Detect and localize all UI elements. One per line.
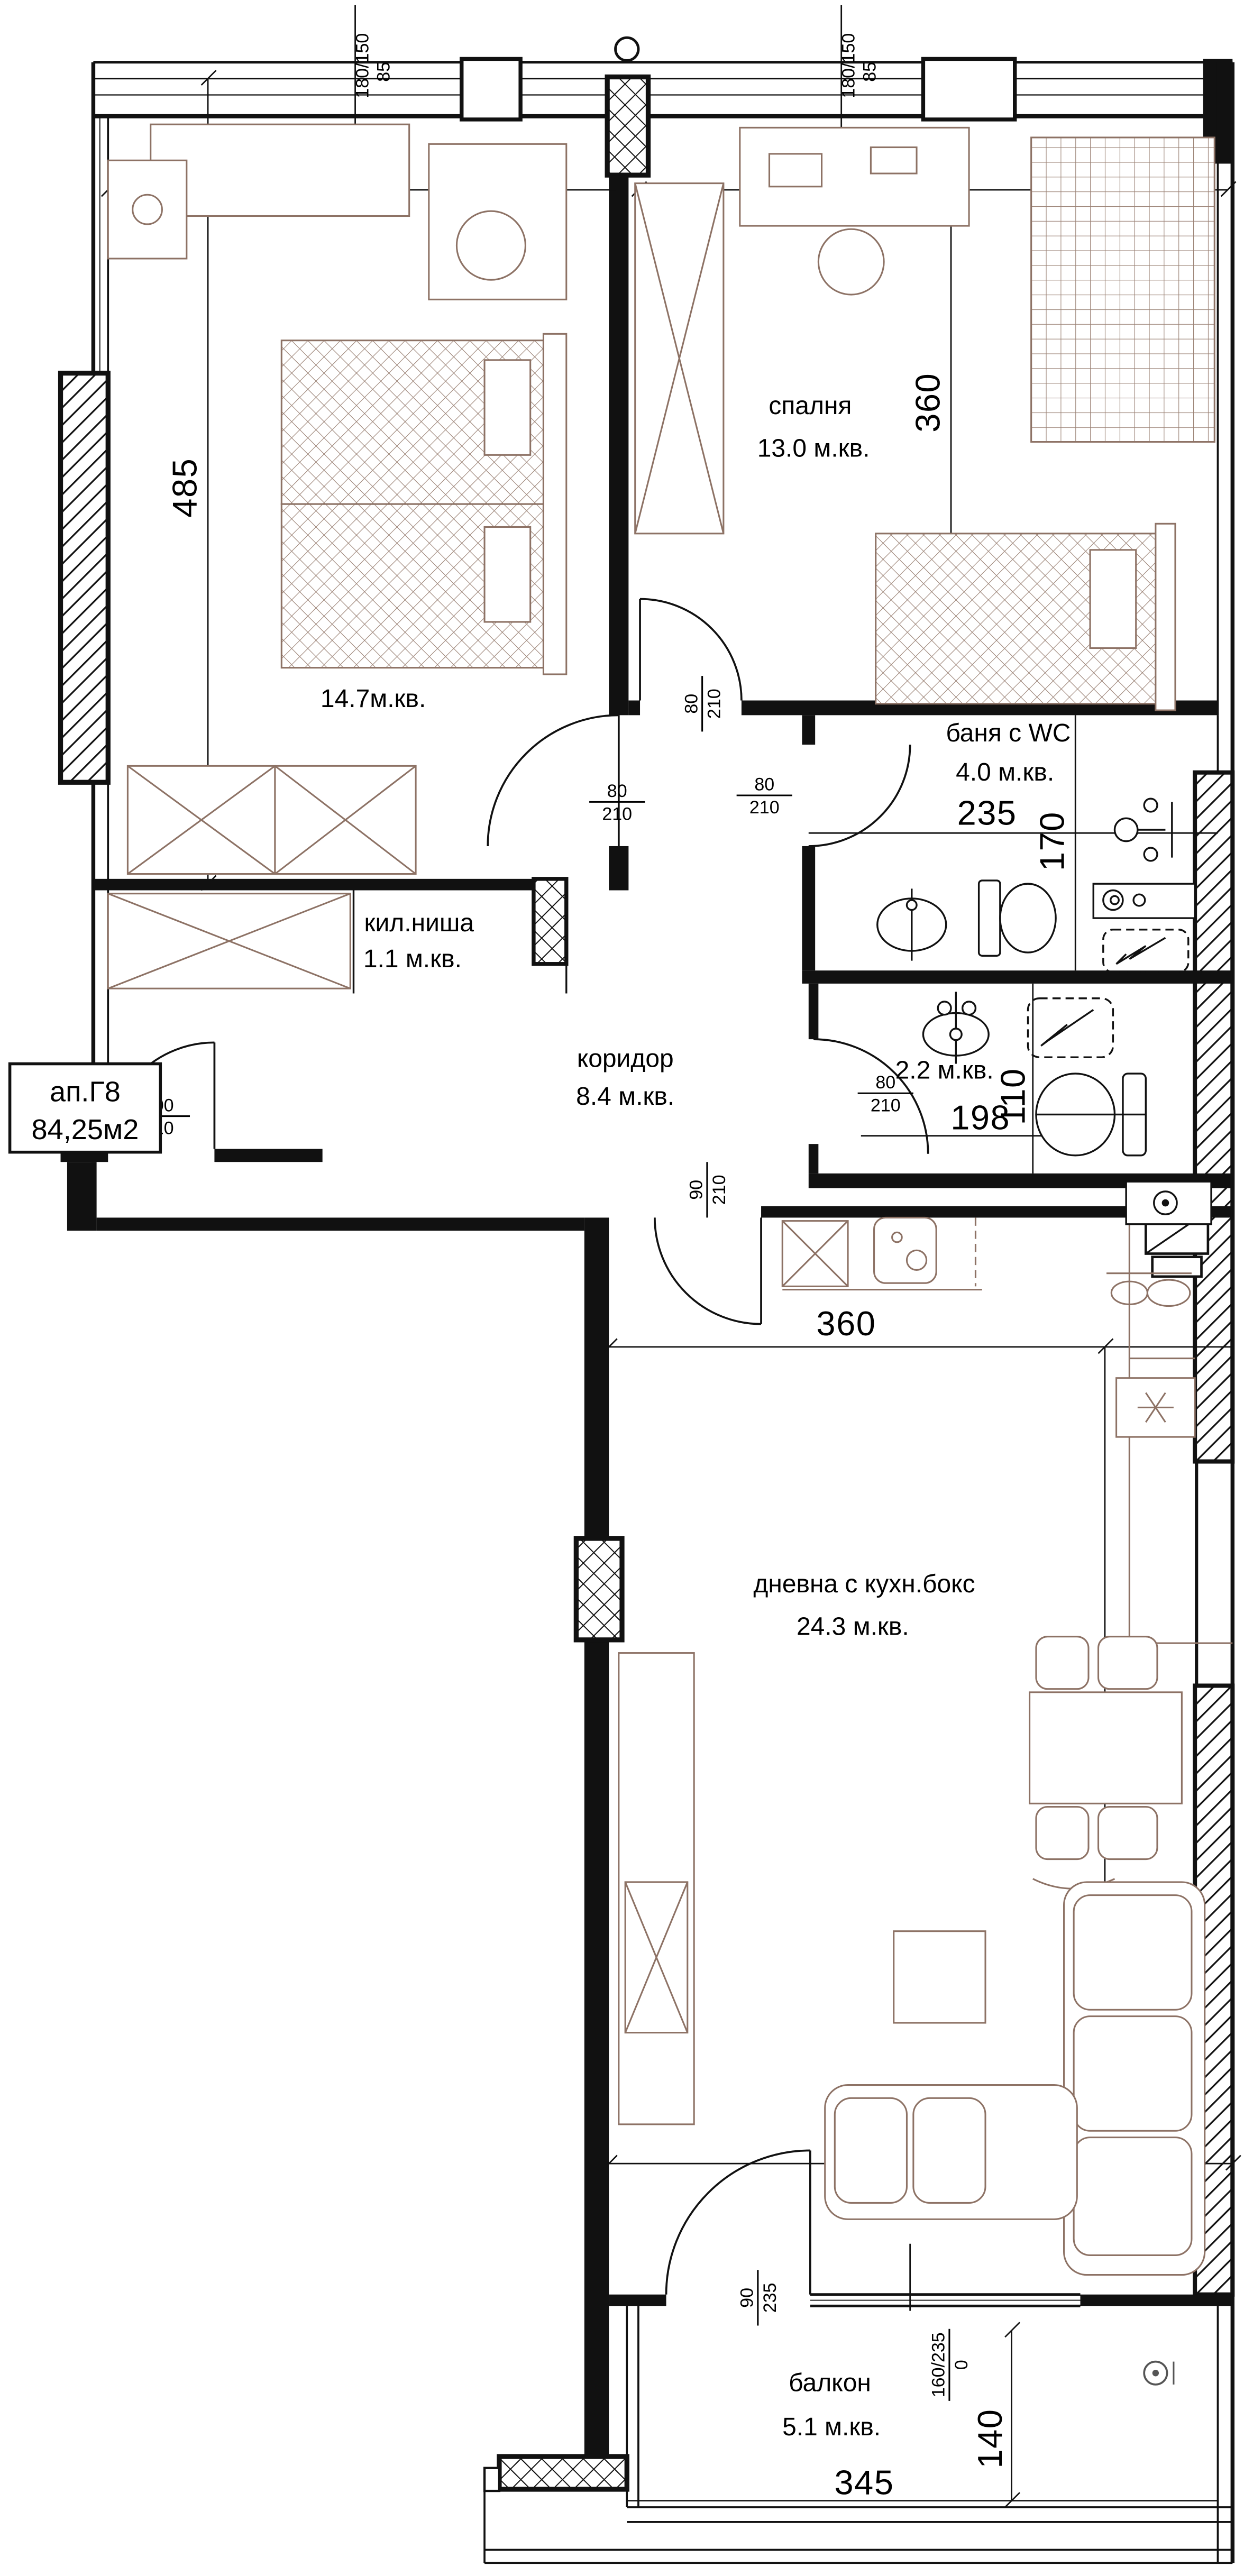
window-sill: 85 [860, 62, 880, 82]
door-height: 235 [760, 2283, 780, 2313]
chair [1099, 1807, 1157, 1859]
apartment-area: 84,25м2 [32, 1114, 139, 1145]
dining-table [1030, 1692, 1182, 1803]
room-name: спалня [769, 392, 852, 420]
wardrobe-grid [1031, 137, 1215, 442]
laptop [770, 154, 822, 187]
drain-dot [1152, 2370, 1159, 2376]
window-label-top-left: 180/150 85 [352, 33, 394, 98]
room-label-living-kitchen: дневна с кухн.бокс 24.3 м.кв. [753, 1570, 975, 1640]
sofa-cushion [1074, 2138, 1192, 2256]
shaft-hatched [576, 1538, 622, 1640]
pillow [1090, 550, 1136, 648]
balcony-shaft-hatched [499, 2456, 627, 2489]
window-label-balcony: 160/235 0 [929, 2329, 972, 2401]
floor-plan: 303 360 485 360 235 170 198 110 360 676 … [0, 0, 1244, 2576]
room-name: балкон [789, 2369, 871, 2397]
floor-plan-page: 303 360 485 360 235 170 198 110 360 676 … [0, 0, 1244, 2576]
door-height: 210 [705, 689, 725, 719]
room-area: 14.7м.кв. [321, 685, 426, 713]
niche-wardrobe [108, 894, 350, 988]
door-label-bath: 80 210 [737, 775, 792, 818]
pillow [484, 527, 530, 621]
room-area: 8.4 м.кв. [576, 1083, 674, 1111]
living-door-arc [655, 1217, 761, 1324]
door-label-balcony: 90 235 [737, 2270, 780, 2325]
room-label-corridor: коридор 8.4 м.кв. [576, 1045, 674, 1111]
door-label-living: 90 210 [687, 1162, 729, 1217]
dim-wc-height: 110 [993, 1068, 1032, 1125]
bath-door-arc [809, 745, 910, 846]
coffee-table [894, 1931, 985, 2023]
room-area: 5.1 м.кв. [782, 2413, 881, 2441]
bedroom1-door-arc [488, 715, 619, 846]
sofa-cushion [835, 2098, 907, 2203]
chair [818, 229, 884, 295]
headboard [1156, 524, 1175, 710]
dim-bath-height: 170 [1033, 811, 1072, 871]
door-width: 80 [681, 694, 701, 714]
boiler-icon [1103, 930, 1188, 972]
room-area: 13.0 м.кв. [757, 434, 870, 462]
chair [1036, 1637, 1088, 1689]
sink-icon [923, 992, 989, 1064]
door-width: 80 [607, 781, 627, 801]
insulation-strip [61, 373, 108, 783]
toilet-icon [1000, 884, 1056, 952]
boiler-icon [1028, 998, 1113, 1057]
room-area: 2.2 м.кв. [895, 1056, 994, 1084]
wall-pier [923, 59, 1014, 120]
door-width: 80 [754, 775, 774, 795]
dim-kitchen-width: 360 [816, 1304, 876, 1343]
chair [456, 211, 525, 280]
wall-pier [462, 59, 520, 120]
dim-balcony-width: 345 [834, 2463, 894, 2501]
shaft-hatched [534, 879, 566, 964]
cabinet-x [782, 1221, 848, 1287]
room-label-bathroom: баня с WC 4.0 м.кв. [946, 719, 1071, 786]
fridge-star-icon [1117, 1378, 1195, 1437]
room-label-balcony: балкон 5.1 м.кв. [782, 2369, 881, 2441]
room-label-bedroom-2: спалня 13.0 м.кв. [757, 392, 870, 462]
tall-cabinet [635, 184, 724, 534]
door-label-bedroom2: 80 210 [681, 676, 724, 731]
pillow [484, 360, 530, 455]
window-size: 160/235 [929, 2332, 949, 2397]
window-sill: 0 [952, 2360, 972, 2370]
sofa-cushion [913, 2098, 985, 2203]
shelf [151, 124, 409, 216]
door-width: 90 [687, 1180, 707, 1200]
room-name: кил.ниша [364, 909, 474, 937]
window-sill: 85 [374, 62, 394, 82]
double-bed [281, 334, 566, 674]
room-name: дневна с кухн.бокс [753, 1570, 975, 1598]
door-width: 90 [737, 2288, 757, 2308]
door-width: 80 [875, 1072, 895, 1093]
bedroom2-door-arc [640, 599, 742, 701]
room-name: коридор [577, 1045, 674, 1073]
door-height: 210 [709, 1175, 729, 1205]
corner-unit [1126, 1181, 1211, 1224]
chair [1036, 1807, 1088, 1859]
furniture-bedroom-1 [108, 124, 566, 988]
apartment-id: ап.Г8 [50, 1076, 121, 1108]
headboard [543, 334, 566, 674]
room-label-closet-niche: кил.ниша 1.1 м.кв. [363, 909, 474, 973]
apartment-tag: ап.Г8 84,25м2 [10, 1064, 161, 1152]
shaft-hatched [607, 77, 648, 175]
chair [1099, 1637, 1157, 1689]
dim-bedroom2-right: 360 [908, 373, 947, 433]
dim-balcony-depth: 140 [971, 2409, 1009, 2469]
door-height: 210 [602, 804, 632, 824]
single-bed [876, 524, 1175, 710]
door-height: 210 [871, 1095, 901, 1115]
tv-stand [619, 1653, 694, 2124]
desk-item [871, 148, 917, 174]
radiator-icon [1114, 799, 1172, 861]
dim-left-height: 485 [165, 458, 204, 518]
door-label-bedroom1: 80 210 [589, 781, 645, 824]
toilet-tank [979, 881, 1000, 956]
washbasin-counter [1093, 884, 1195, 918]
vent-circle-icon [616, 38, 638, 60]
balcony-door-arc [666, 2150, 810, 2294]
window-size: 180/150 [352, 33, 372, 98]
room-area: 24.3 м.кв. [797, 1613, 909, 1641]
balcony-detail [1144, 2362, 1174, 2385]
kitchen-sink-icon [874, 1217, 937, 1283]
insulation-strip [1195, 773, 1232, 1462]
sofa-cushion [1074, 1895, 1192, 2010]
room-area: 1.1 м.кв. [363, 945, 462, 973]
window-label-top-right: 180/150 85 [838, 33, 880, 98]
stove-icon [1106, 1273, 1192, 1306]
dim-bath-width: 235 [957, 794, 1017, 832]
wardrobe [127, 766, 416, 874]
room-area: 4.0 м.кв. [956, 758, 1054, 786]
lamp-icon [133, 195, 162, 224]
window-size: 180/150 [838, 33, 858, 98]
room-name: баня с WC [946, 719, 1071, 747]
sofa-cushion [1074, 2016, 1192, 2131]
door-height: 210 [749, 797, 780, 818]
dining-set [1030, 1637, 1182, 1889]
